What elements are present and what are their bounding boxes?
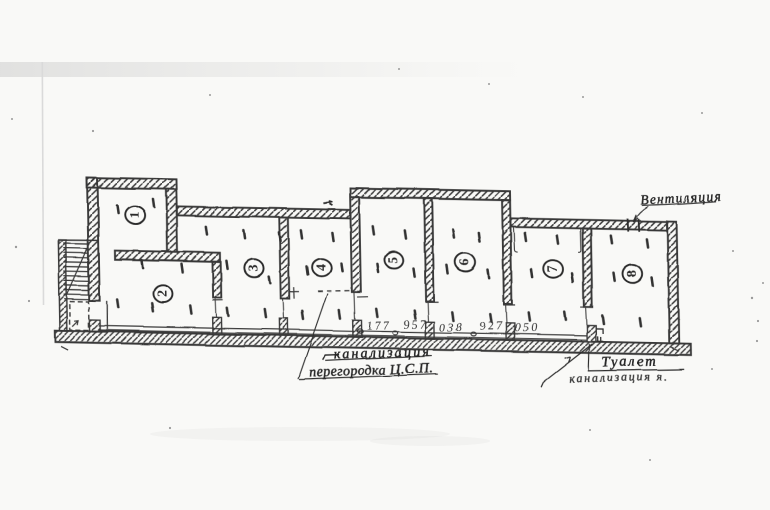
svg-text:1: 1 (127, 211, 142, 218)
svg-text:050: 050 (514, 320, 539, 334)
svg-text:6: 6 (457, 258, 472, 265)
svg-text:038: 038 (439, 320, 464, 334)
svg-text:Туалет: Туалет (602, 354, 658, 371)
svg-text:7: 7 (545, 265, 560, 272)
svg-text:2: 2 (155, 290, 170, 297)
svg-text:4: 4 (314, 264, 329, 271)
svg-text:канализация я.: канализация я. (569, 369, 669, 385)
svg-text:5: 5 (386, 256, 401, 263)
svg-text:177: 177 (366, 318, 391, 332)
svg-text:8: 8 (625, 270, 640, 277)
svg-text:3: 3 (246, 264, 261, 271)
